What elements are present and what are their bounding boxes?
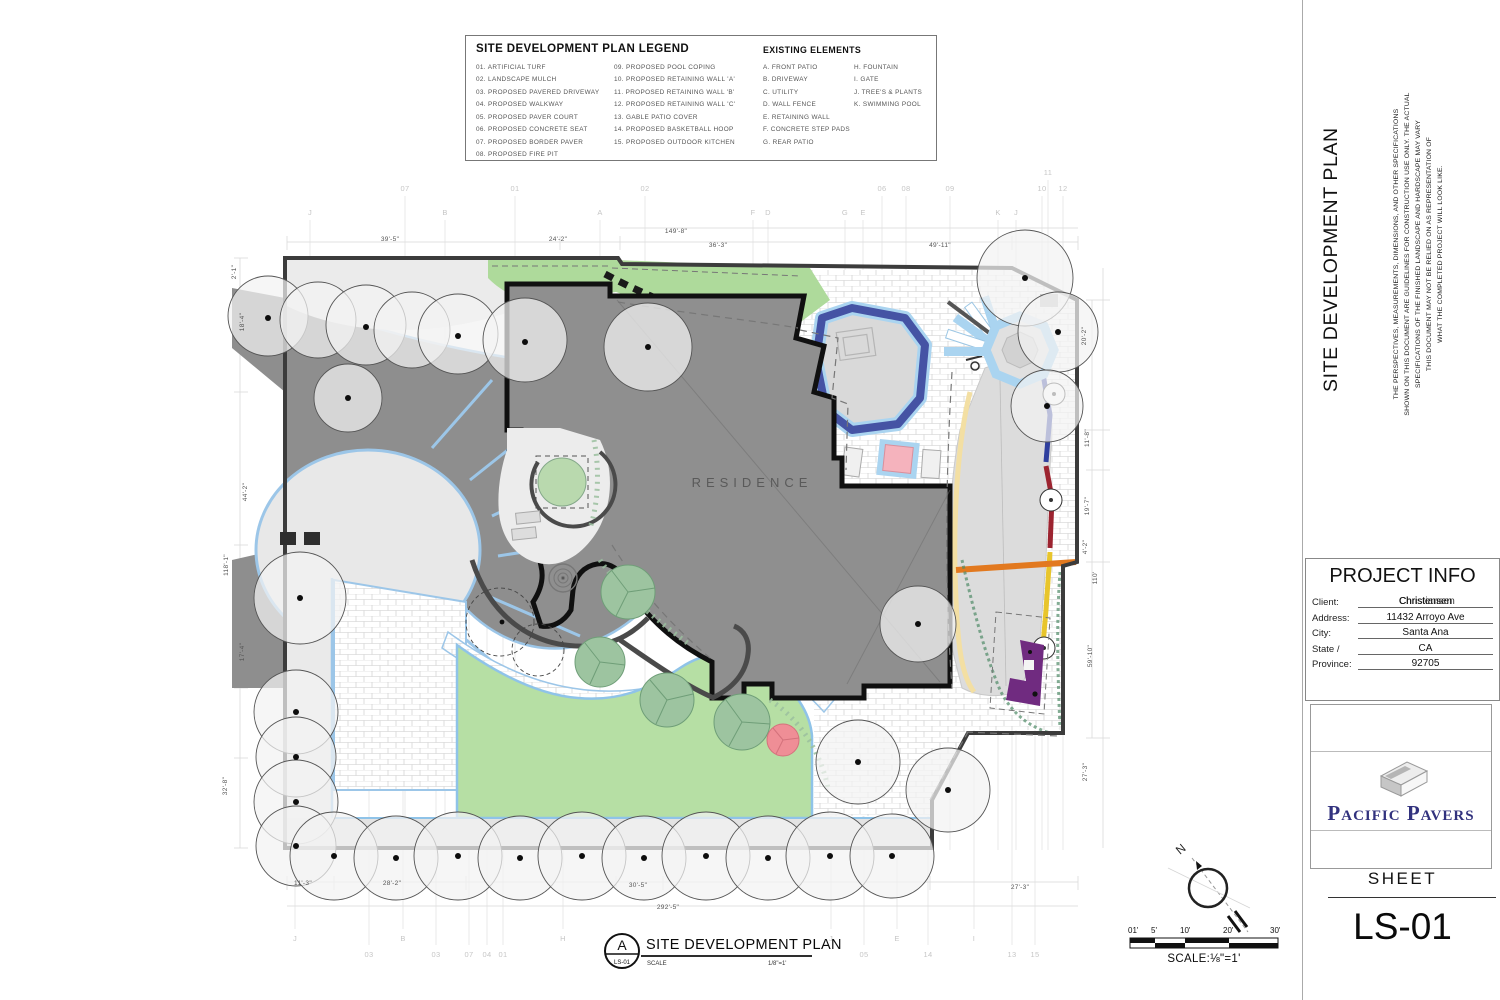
svg-text:2'-1": 2'-1": [231, 264, 238, 279]
province-row: Province: 92705: [1312, 658, 1493, 670]
client-label: Client:: [1312, 597, 1358, 608]
scale-tick-0: 01': [1128, 926, 1139, 935]
scale-bar: 01' 5' 10' 20' 30' SCALE:⅛"=1': [1128, 926, 1281, 965]
svg-text:B: B: [400, 934, 405, 943]
address-row: Address: 11432 Arroyo Ave: [1312, 612, 1493, 624]
svg-text:14: 14: [924, 950, 933, 959]
sheet-number: LS-01: [1305, 906, 1500, 948]
legend-item: A. FRONT PATIO: [763, 62, 850, 74]
legend-item: B. DRIVEWAY: [763, 74, 850, 86]
legend-item: 05. PROPOSED PAVER COURT: [476, 112, 600, 124]
spa: [883, 445, 914, 474]
address-label: Address:: [1312, 613, 1358, 624]
svg-text:04: 04: [483, 950, 492, 959]
svg-text:13: 13: [1008, 950, 1017, 959]
disclaimer-text: THE PERSPECTIVES, MEASUREMENTS, DIMENSIO…: [1392, 30, 1446, 478]
client-value: Christensen Christiansen: [1358, 596, 1493, 608]
legend-proposed-col1: 01. ARTIFICIAL TURF 02. LANDSCAPE MULCH …: [476, 62, 600, 162]
legend-item: 13. GABLE PATIO COVER: [614, 112, 735, 124]
svg-text:39'-5": 39'-5": [381, 236, 400, 243]
svg-text:H: H: [560, 934, 566, 943]
svg-text:G: G: [842, 208, 848, 217]
svg-text:11: 11: [1044, 168, 1052, 177]
state-value: CA: [1358, 643, 1493, 655]
svg-text:05: 05: [860, 950, 869, 959]
svg-text:J: J: [1014, 208, 1018, 217]
svg-text:12: 12: [1059, 184, 1068, 193]
scale-text: SCALE:⅛"=1': [1167, 953, 1240, 965]
legend-item: E. RETAINING WALL: [763, 112, 850, 124]
residence-label: RESIDENCE: [692, 475, 813, 490]
svg-text:19'-7": 19'-7": [1084, 496, 1091, 515]
legend-item: 10. PROPOSED RETAINING WALL 'A': [614, 74, 735, 86]
svg-text:07: 07: [465, 950, 474, 959]
pink-tree: [767, 724, 799, 756]
svg-text:E: E: [860, 208, 865, 217]
svg-text:06: 06: [878, 184, 887, 193]
scale-tick-3: 20': [1223, 926, 1234, 935]
scale-tick-2: 10': [1180, 926, 1191, 935]
svg-text:10: 10: [1038, 184, 1047, 193]
disclaimer-line: THE PERSPECTIVES, MEASUREMENTS, DIMENSIO…: [1392, 30, 1403, 478]
svg-text:32'-8": 32'-8": [222, 776, 229, 795]
scale-tick-1: 5': [1151, 926, 1157, 935]
north-label: N: [1173, 841, 1189, 857]
svg-text:59'-10": 59'-10": [1087, 644, 1094, 667]
legend-item: G. REAR PATIO: [763, 137, 850, 149]
svg-text:36'-3": 36'-3": [709, 242, 728, 249]
svg-text:20'-2": 20'-2": [1081, 326, 1088, 345]
detail-sheet-ref: LS-01: [614, 960, 631, 966]
scale-tick-4: 30': [1270, 926, 1281, 935]
svg-text:D: D: [765, 208, 771, 217]
legend-item: 01. ARTIFICIAL TURF: [476, 62, 600, 74]
legend-item: 03. PROPOSED PAVERED DRIVEWAY: [476, 87, 600, 99]
scale-value: 1/8"=1': [768, 961, 786, 967]
disclaimer-line: SPECIFICATIONS OF THE FINISHED LANDSCAPE…: [1414, 30, 1425, 478]
legend-item: F. CONCRETE STEP PADS: [763, 124, 850, 136]
legend-item: 06. PROPOSED CONCRETE SEAT: [476, 124, 600, 136]
legend-item: C. UTILITY: [763, 87, 850, 99]
svg-text:11'-3": 11'-3": [294, 880, 312, 887]
address-value: 11432 Arroyo Ave: [1358, 612, 1493, 624]
legend-box: SITE DEVELOPMENT PLAN LEGEND 01. ARTIFIC…: [465, 35, 937, 161]
north-arrow: N: [1168, 841, 1250, 932]
svg-text:01: 01: [499, 950, 508, 959]
legend-item: 14. PROPOSED BASKETBALL HOOP: [614, 124, 735, 136]
legend-item: 09. PROPOSED POOL COPING: [614, 62, 735, 74]
svg-text:09: 09: [946, 184, 955, 193]
svg-text:49'-11": 49'-11": [929, 242, 951, 249]
legend-title: SITE DEVELOPMENT PLAN LEGEND: [476, 43, 689, 55]
svg-text:J: J: [308, 208, 312, 217]
client-row: Client: Christensen Christiansen: [1312, 596, 1493, 608]
legend-item: I. GATE: [854, 74, 922, 86]
svg-text:30'-5": 30'-5": [629, 882, 648, 889]
company-logo-text: Pacific Pavers: [1311, 803, 1491, 824]
drawing-title-block: A LS-01 SITE DEVELOPMENT PLAN SCALE 1/8"…: [605, 934, 842, 968]
svg-text:24'-2": 24'-2": [549, 236, 568, 243]
city-label: City:: [1312, 628, 1358, 639]
legend-proposed-col2: 09. PROPOSED POOL COPING 10. PROPOSED RE…: [614, 62, 735, 149]
project-info-box: PROJECT INFO Client: Christensen Christi…: [1305, 558, 1500, 701]
drawing-title: SITE DEVELOPMENT PLAN: [646, 937, 842, 953]
svg-text:01: 01: [511, 184, 520, 193]
legend-item: J. TREE'S & PLANTS: [854, 87, 922, 99]
svg-text:E: E: [894, 934, 899, 943]
sheet-vertical-title: SITE DEVELOPMENT PLAN: [1320, 127, 1343, 392]
legend-item: 12. PROPOSED RETAINING WALL 'C': [614, 99, 735, 111]
sheet-label: SHEET: [1305, 869, 1500, 889]
svg-text:44'-2": 44'-2": [242, 482, 249, 501]
legend-item: 15. PROPOSED OUTDOOR KITCHEN: [614, 137, 735, 149]
svg-text:08: 08: [902, 184, 911, 193]
svg-text:I: I: [973, 934, 975, 943]
disclaimer-line: THIS DOCUMENT MAY NOT BE RELIED ON AS RE…: [1425, 30, 1436, 478]
svg-text:J: J: [293, 934, 297, 943]
svg-text:A: A: [597, 208, 602, 217]
legend-item: 02. LANDSCAPE MULCH: [476, 74, 600, 86]
svg-text:149'-8": 149'-8": [665, 228, 688, 235]
client-value-overlap: Christiansen: [1360, 596, 1495, 607]
disclaimer-line: WHAT THE COMPLETED PROJECT WILL LOOK LIK…: [1436, 30, 1447, 478]
planting-bed: [538, 458, 586, 506]
svg-text:110': 110': [1092, 572, 1099, 585]
scale-label: SCALE: [647, 961, 667, 967]
legend-item: 11. PROPOSED RETAINING WALL 'B': [614, 87, 735, 99]
svg-text:02: 02: [641, 184, 650, 193]
city-value: Santa Ana: [1358, 627, 1493, 639]
svg-text:292'-5": 292'-5": [657, 904, 680, 911]
project-info-title: PROJECT INFO: [1306, 565, 1499, 588]
svg-text:B: B: [442, 208, 447, 217]
state-row: State / CA: [1312, 643, 1493, 655]
legend-item: 04. PROPOSED WALKWAY: [476, 99, 600, 111]
legend-item: H. FOUNTAIN: [854, 62, 922, 74]
svg-text:03: 03: [365, 950, 374, 959]
existing-elements-title: EXISTING ELEMENTS: [763, 45, 861, 55]
svg-text:27'-3": 27'-3": [1011, 884, 1030, 891]
svg-text:28'-2": 28'-2": [383, 880, 402, 887]
sheet-divider: [1302, 0, 1303, 1000]
state-label: State /: [1312, 644, 1358, 655]
svg-text:118'-1": 118'-1": [223, 554, 230, 576]
svg-text:4'-2": 4'-2": [1082, 539, 1089, 554]
legend-item: 08. PROPOSED FIRE PIT: [476, 149, 600, 161]
city-row: City: Santa Ana: [1312, 627, 1493, 639]
svg-text:07: 07: [401, 184, 410, 193]
legend-existing-col1: A. FRONT PATIO B. DRIVEWAY C. UTILITY D.…: [763, 62, 850, 149]
disclaimer-line: SHOWN ON THIS DOCUMENT ARE GUIDELINES FO…: [1403, 30, 1414, 478]
legend-item: D. WALL FENCE: [763, 99, 850, 111]
svg-text:03: 03: [432, 950, 441, 959]
sheet-label-underline: [1328, 897, 1496, 898]
svg-text:18'-4": 18'-4": [239, 312, 246, 331]
svg-text:11'-8": 11'-8": [1084, 429, 1091, 447]
legend-item: 07. PROPOSED BORDER PAVER: [476, 137, 600, 149]
legend-existing-col2: H. FOUNTAIN I. GATE J. TREE'S & PLANTS K…: [854, 62, 922, 112]
paver-brick-icon: [1369, 754, 1433, 798]
company-logo-box: Pacific Pavers: [1310, 704, 1492, 869]
province-label: Province:: [1312, 659, 1358, 670]
svg-text:15: 15: [1031, 950, 1040, 959]
svg-text:K: K: [995, 208, 1000, 217]
svg-text:F: F: [751, 208, 756, 217]
legend-item: K. SWIMMING POOL: [854, 99, 922, 111]
province-value: 92705: [1358, 658, 1493, 670]
detail-letter: A: [617, 937, 627, 953]
svg-text:17'-4": 17'-4": [239, 642, 246, 661]
svg-text:27'-3": 27'-3": [1082, 762, 1089, 781]
